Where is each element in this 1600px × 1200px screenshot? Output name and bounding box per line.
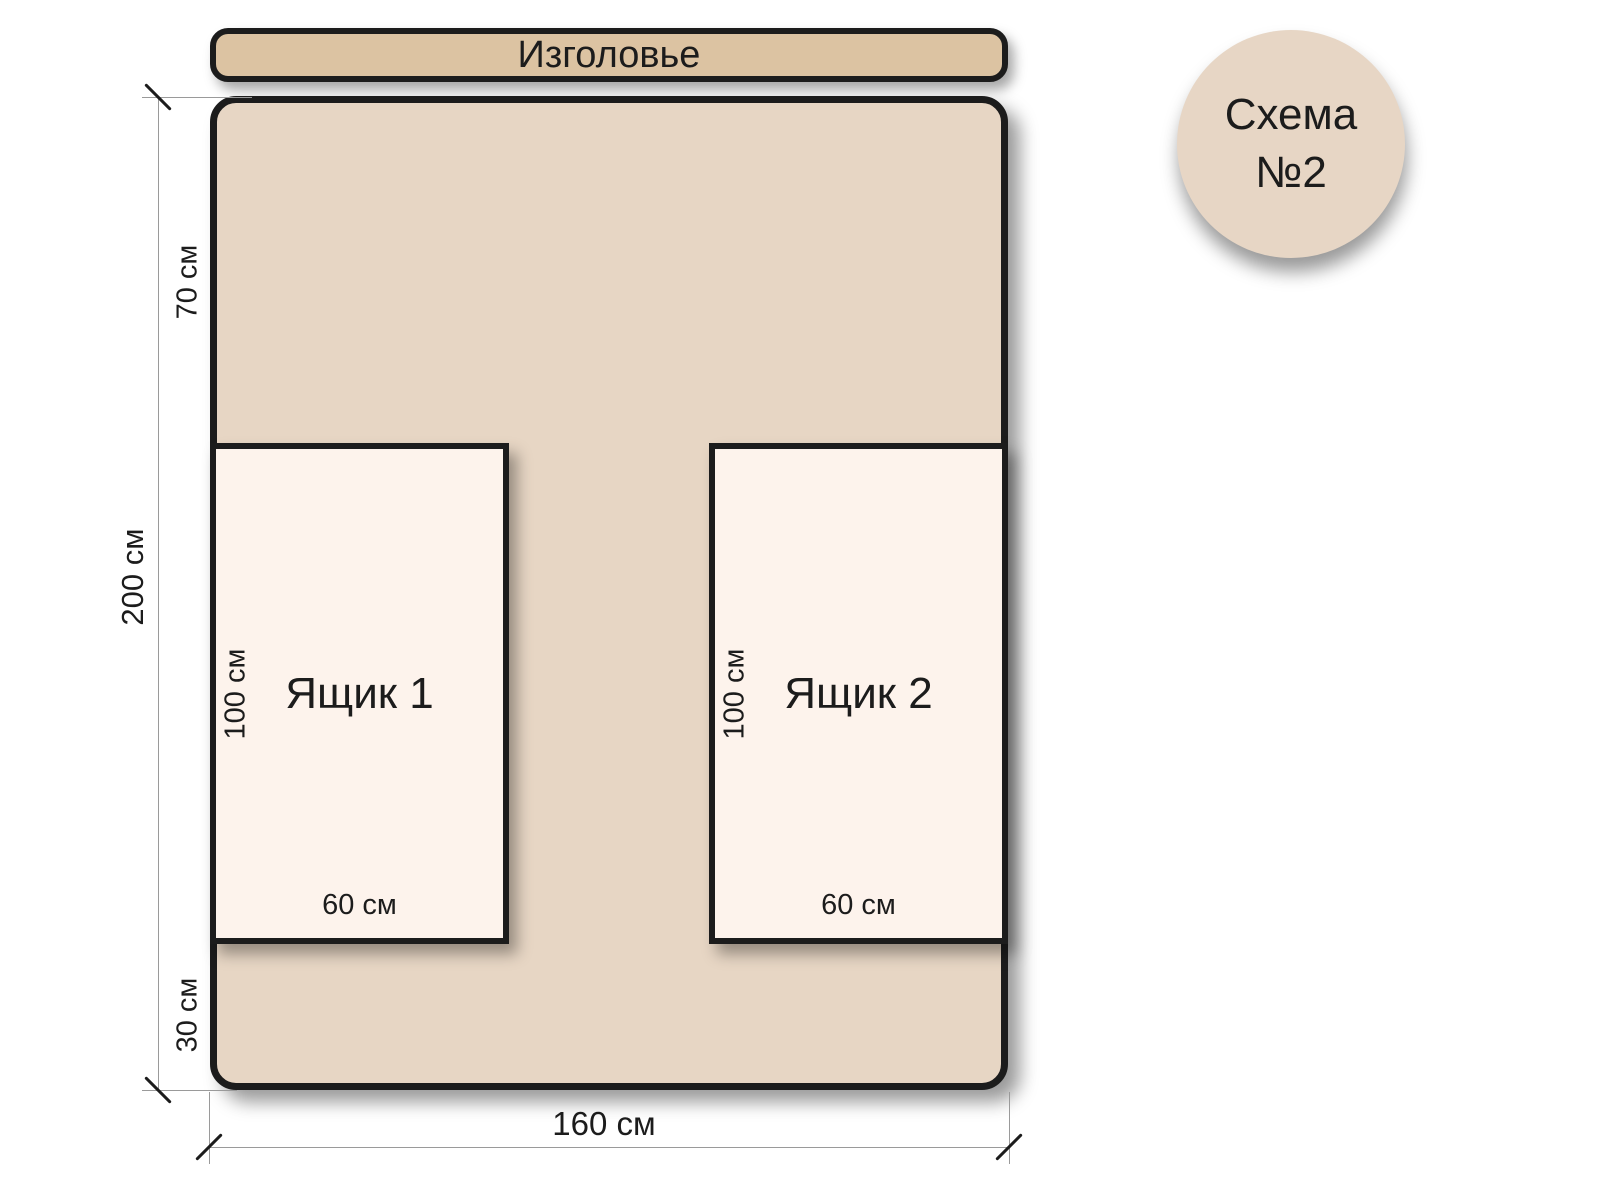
drawer-1-label: Ящик 1 [285,669,434,719]
scheme-number-badge: Схема №2 [1177,30,1405,258]
scheme-badge-line1: Схема [1225,86,1357,144]
dim-label-bottom-gap: 30 см [172,978,205,1053]
drawer-2-height-label: 100 см [719,648,752,739]
drawer-1-height-label: 100 см [220,648,253,739]
drawer-1: 100 см Ящик 1 60 см [210,443,509,944]
dim-line-vertical [158,97,159,1090]
dim-extension-bottom-left [209,1092,210,1164]
headboard-shape: Изголовье [210,28,1008,82]
drawer-2-label: Ящик 2 [784,669,933,719]
dim-label-total-height: 200 см [115,528,151,625]
scheme-badge-line2: №2 [1255,144,1327,202]
drawer-1-width-label: 60 см [216,889,503,922]
dim-line-horizontal [209,1147,1009,1148]
dim-extension-bottom-right [1009,1092,1010,1164]
drawer-2-width-label: 60 см [715,889,1002,922]
dim-label-top-gap: 70 см [172,245,205,320]
drawer-2: 100 см Ящик 2 60 см [709,443,1008,944]
bed-scheme-diagram: Изголовье 100 см Ящик 1 60 см 100 см Ящи… [0,0,1600,1200]
headboard-label: Изголовье [518,34,701,77]
dim-label-total-width: 160 см [552,1105,655,1143]
